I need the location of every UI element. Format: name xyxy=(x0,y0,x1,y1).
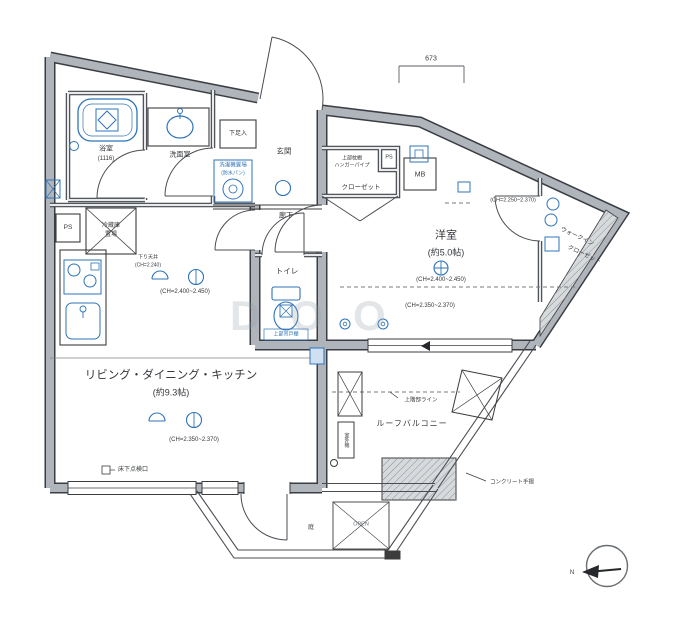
bath-size-label: (1116) xyxy=(98,156,114,162)
mb-label: MB xyxy=(415,172,426,179)
fridge-cross xyxy=(86,208,136,254)
closet-label: クローゼット xyxy=(342,185,381,192)
laundry-label-2: (防水パン) xyxy=(221,171,245,176)
floor-hatch-symbol xyxy=(102,466,110,474)
ldk-ch-lower-label: (CH=2.350~2.370) xyxy=(169,437,219,443)
west-room-light-icon xyxy=(434,261,448,275)
entrance-light-icon xyxy=(276,181,291,196)
ldk-ch-upper-label: (CH=2.400~2.450) xyxy=(160,289,210,295)
sink-icon xyxy=(66,303,100,339)
floor-hatch-label: 床下点検口 xyxy=(118,467,148,473)
stove-icon xyxy=(64,260,101,294)
walls-thick xyxy=(50,57,622,488)
ldk-light-dome2-icon xyxy=(149,413,165,421)
washbasin-icon xyxy=(167,109,193,139)
ldk-light-dome-icon xyxy=(152,271,168,279)
west-room-ch-top-label: (CH=2.250~2.370) xyxy=(490,198,536,204)
garden-label: 庭 xyxy=(308,525,314,531)
intercom-icon xyxy=(458,182,470,192)
wic-fitting-icons xyxy=(545,198,559,251)
toilet-label: トイレ xyxy=(276,267,299,275)
ldk-label: リビング・ダイニング・キッチン xyxy=(85,370,258,382)
roof-balcony-label: ルーフバルコニー xyxy=(376,420,447,428)
laundry-label-1: 洗濯機置場 xyxy=(219,163,247,169)
ldk-size-label: (約9.3帖) xyxy=(153,389,190,398)
west-room-label: 洋室 xyxy=(435,231,457,242)
dimension-label: 673 xyxy=(425,56,437,63)
ldk-soffit-label-1: 下り天井 xyxy=(138,256,158,261)
concrete-rail-label: コンクリート手摺 xyxy=(490,480,534,486)
compass-icon xyxy=(582,546,628,587)
west-room-size-label: (約5.0帖) xyxy=(428,249,465,258)
floor-plan-page: DOO 673 浴室 (1116) 洗面室 洗濯機置場 (防水パン) 下足入 玄… xyxy=(0,0,676,627)
entrance-door xyxy=(260,37,323,110)
bath-label: 浴室 xyxy=(99,146,113,153)
ps-top-label: PS xyxy=(385,155,392,161)
dimension-marker xyxy=(399,66,464,83)
ldk-light-icon xyxy=(189,270,204,285)
compass-n-label: N xyxy=(570,570,574,576)
watermark: DOO xyxy=(230,292,416,340)
balcony-door-opening xyxy=(244,482,290,495)
fridge-label-2: 置場 xyxy=(105,232,117,238)
ldk-light2-icon xyxy=(187,413,202,428)
closet-doors xyxy=(322,196,398,221)
drain-block xyxy=(385,551,400,559)
open-label: OPEN xyxy=(353,522,369,528)
closet-upper-label-2: ハンガーパイプ xyxy=(335,164,370,169)
toilet-note-label: 上部吊戸棚 xyxy=(273,332,298,337)
entrance-label: 玄関 xyxy=(277,147,292,155)
water-heater-icon xyxy=(310,348,324,364)
ldk-door xyxy=(215,210,255,250)
ps-left-label: PS xyxy=(64,225,73,232)
west-room-ch-low-label: (CH=2.350~2.370) xyxy=(405,303,455,309)
vanity-counter xyxy=(148,108,209,146)
washroom-label: 洗面室 xyxy=(170,152,191,159)
drain xyxy=(331,460,338,467)
bathtub-icon xyxy=(78,99,137,141)
outdoor-unit-label: 室外機 xyxy=(344,433,349,448)
meter-box-icon xyxy=(410,146,428,162)
upper-floor-line-label: 上階部ライン xyxy=(404,398,437,404)
closet-upper-label-1: 上部枕棚 xyxy=(342,157,362,162)
shoebox-label: 下足入 xyxy=(229,131,247,137)
bath-light-icon xyxy=(70,142,79,151)
terrace-door xyxy=(241,494,287,540)
ldk-soffit-label-2: (CH=2.240) xyxy=(135,263,161,268)
hallway-label: 廊下 xyxy=(279,213,293,220)
west-room-ch-mid-label: (CH=2.400~2.450) xyxy=(416,277,466,283)
fridge-label-1: 冷蔵庫 xyxy=(102,223,120,229)
